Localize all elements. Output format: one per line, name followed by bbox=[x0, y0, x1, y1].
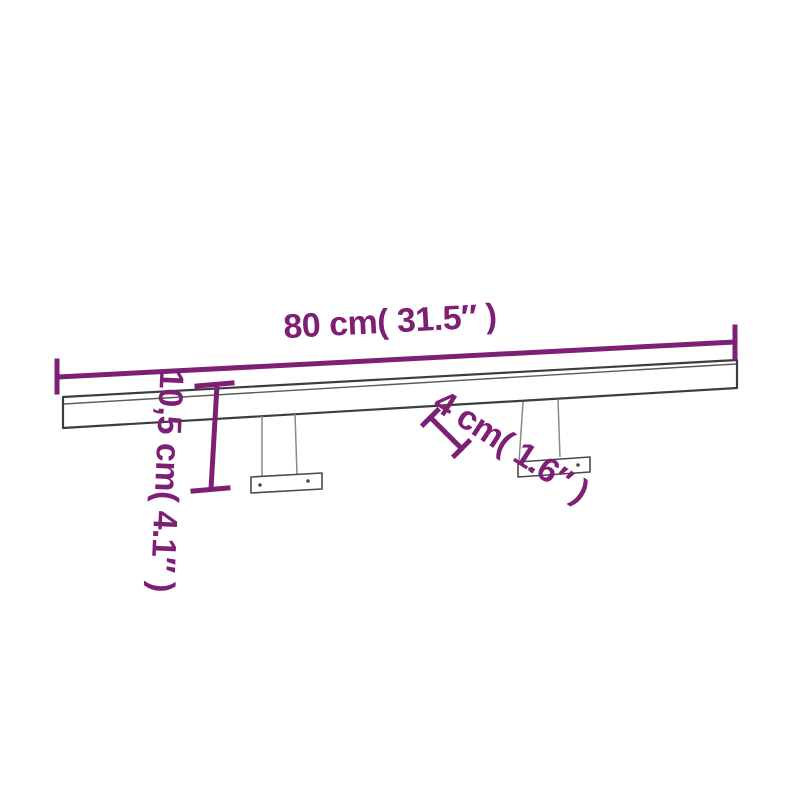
product-dimension-diagram: 80 cm( 31.5″ ) 10,5 cm( 4.1″ ) 4 cm( 1.6… bbox=[0, 0, 800, 800]
left-plate-screw-2 bbox=[306, 479, 310, 483]
left-bracket bbox=[262, 414, 297, 478]
left-bracket-plate bbox=[251, 473, 322, 493]
left-bracket-post-back bbox=[295, 414, 297, 474]
left-bracket-plate-group bbox=[251, 473, 322, 493]
height-dimension-cap-bottom bbox=[193, 488, 228, 491]
light-bar-drawing bbox=[0, 0, 800, 800]
left-plate-screw-1 bbox=[258, 483, 262, 487]
right-bracket-post-back bbox=[558, 400, 560, 457]
